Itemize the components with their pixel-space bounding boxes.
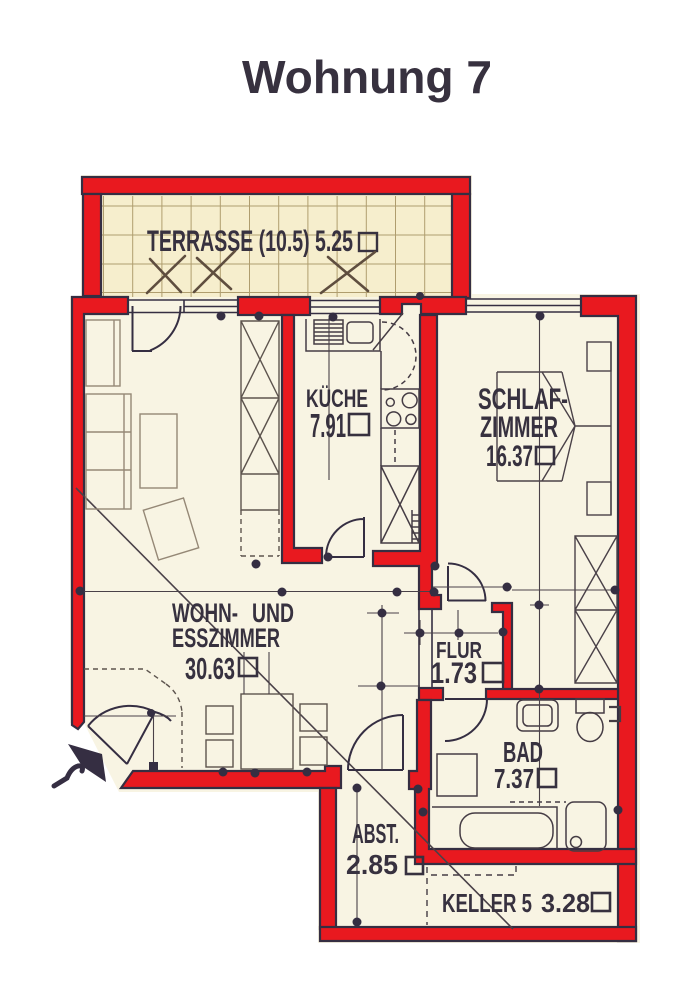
svg-text:KELLER 5: KELLER 5 xyxy=(442,888,532,918)
svg-text:7.91: 7.91 xyxy=(310,407,346,444)
svg-text:3.28: 3.28 xyxy=(541,888,590,918)
svg-text:Wohnung 7: Wohnung 7 xyxy=(242,51,492,103)
svg-text:TERRASSE (10.5) 5.25: TERRASSE (10.5) 5.25 xyxy=(147,225,353,258)
svg-text:1.73: 1.73 xyxy=(431,657,477,690)
svg-text:7.37: 7.37 xyxy=(494,763,534,794)
svg-text:30.63: 30.63 xyxy=(185,651,235,686)
svg-text:16.37: 16.37 xyxy=(486,440,533,473)
svg-text:ABST.: ABST. xyxy=(352,818,399,849)
svg-text:2.85: 2.85 xyxy=(346,849,398,880)
svg-text:ESSZIMMER: ESSZIMMER xyxy=(172,623,280,653)
